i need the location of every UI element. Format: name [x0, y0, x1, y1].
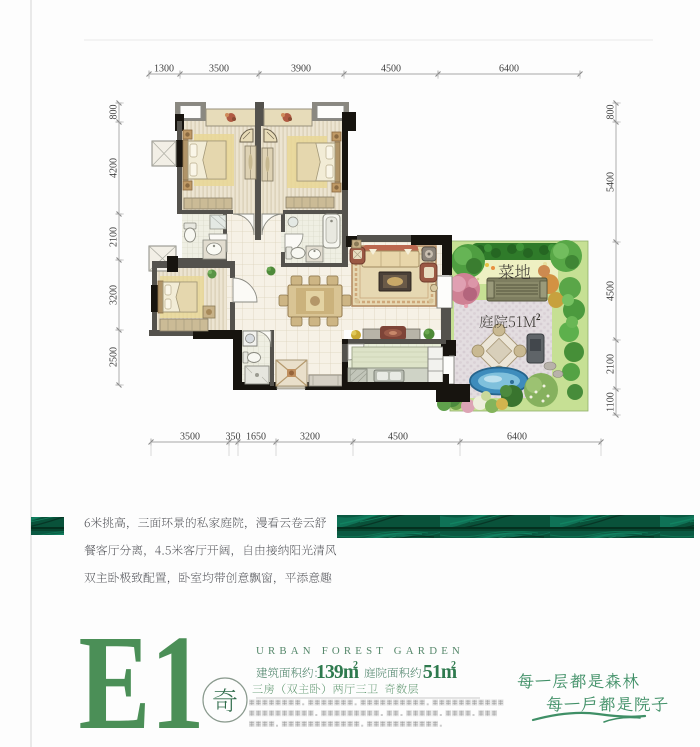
svg-text:800: 800 [109, 105, 120, 120]
svg-text:2100: 2100 [109, 227, 120, 247]
svg-text:6400: 6400 [499, 64, 519, 75]
svg-text:2: 2 [451, 660, 456, 671]
svg-text:3200: 3200 [109, 285, 120, 305]
svg-text:2500: 2500 [109, 347, 120, 367]
svg-text:URBAN FOREST GARDEN: URBAN FOREST GARDEN [256, 645, 464, 657]
svg-text:1100: 1100 [606, 392, 617, 412]
svg-text:350: 350 [226, 432, 241, 443]
svg-text:4200: 4200 [109, 158, 120, 178]
svg-text:6400: 6400 [507, 432, 527, 443]
svg-text:3200: 3200 [300, 432, 320, 443]
svg-text:5400: 5400 [606, 172, 617, 192]
svg-text:E1: E1 [79, 608, 205, 747]
svg-text:1300: 1300 [154, 64, 174, 75]
svg-text:4500: 4500 [606, 281, 617, 301]
svg-text:3500: 3500 [209, 64, 229, 75]
svg-text:4500: 4500 [388, 432, 408, 443]
svg-text:800: 800 [606, 105, 617, 120]
svg-text:2: 2 [353, 660, 358, 671]
svg-text:2: 2 [536, 312, 541, 322]
svg-text:3900: 3900 [291, 64, 311, 75]
svg-text:2100: 2100 [606, 354, 617, 374]
svg-text:1650: 1650 [246, 432, 266, 443]
svg-text:3500: 3500 [180, 432, 200, 443]
svg-text:4500: 4500 [381, 64, 401, 75]
